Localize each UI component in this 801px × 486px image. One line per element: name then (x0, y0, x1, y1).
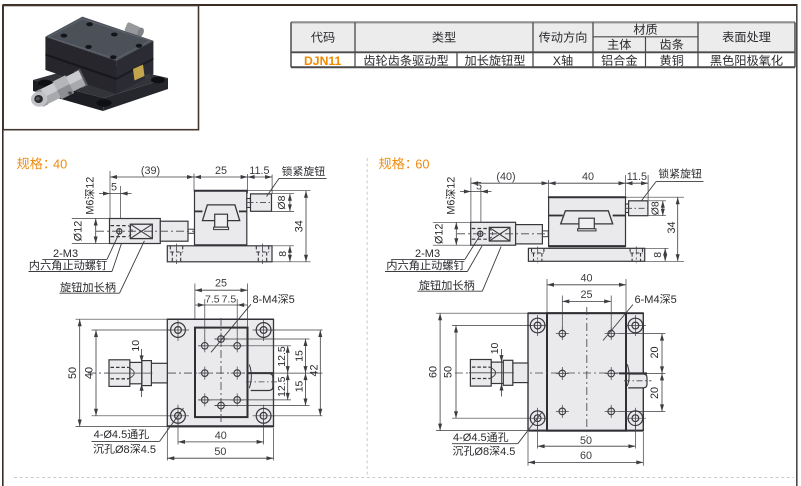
svg-text:12.5: 12.5 (276, 346, 288, 367)
svg-text:25: 25 (581, 289, 593, 301)
svg-text:42: 42 (309, 364, 321, 376)
svg-text:34: 34 (294, 220, 306, 232)
svg-text:6-M4: 6-M4 (635, 294, 660, 306)
svg-text:5: 5 (111, 182, 117, 194)
svg-text:60: 60 (415, 156, 429, 171)
svg-text:11.5: 11.5 (627, 171, 647, 183)
svg-text:40: 40 (582, 171, 594, 183)
svg-text:25: 25 (215, 278, 227, 290)
svg-text:12: 12 (85, 177, 97, 189)
svg-text:4-Ø4.5: 4-Ø4.5 (94, 429, 128, 441)
svg-text:(40): (40) (496, 171, 515, 183)
svg-text:5: 5 (289, 294, 295, 306)
svg-text:40: 40 (215, 430, 227, 442)
svg-text:10: 10 (130, 340, 142, 352)
svg-text:25: 25 (215, 165, 227, 177)
svg-text:60: 60 (427, 366, 439, 378)
svg-text:Ø12: Ø12 (72, 221, 84, 241)
svg-text:M6: M6 (85, 200, 97, 215)
svg-text:40: 40 (53, 156, 67, 171)
svg-text:40: 40 (83, 367, 95, 379)
svg-text:Ø8: Ø8 (276, 195, 288, 209)
svg-text:10: 10 (489, 342, 501, 354)
svg-text:M6: M6 (446, 200, 458, 215)
svg-text:40: 40 (581, 273, 593, 285)
svg-text:12.5: 12.5 (276, 376, 288, 397)
svg-text:4-Ø4.5: 4-Ø4.5 (453, 432, 487, 444)
svg-text:34: 34 (666, 221, 678, 233)
svg-text:Ø8: Ø8 (115, 444, 130, 456)
svg-text:60: 60 (580, 450, 592, 462)
svg-text:20: 20 (649, 346, 661, 358)
svg-text:15: 15 (294, 350, 306, 362)
svg-text:7.5: 7.5 (205, 293, 220, 305)
svg-text:(39): (39) (141, 165, 160, 177)
svg-text:50: 50 (442, 366, 454, 378)
svg-text:8: 8 (652, 252, 664, 258)
svg-text:X: X (553, 54, 561, 68)
svg-text:2-M3: 2-M3 (415, 248, 440, 260)
svg-text:4.5: 4.5 (141, 444, 156, 456)
svg-text:12: 12 (446, 177, 458, 189)
svg-text:Ø12: Ø12 (433, 224, 445, 244)
svg-text:50: 50 (67, 367, 79, 379)
svg-text:8-M4: 8-M4 (253, 294, 278, 306)
svg-text:4.5: 4.5 (500, 446, 515, 458)
svg-text:20: 20 (649, 387, 661, 399)
svg-text:50: 50 (214, 446, 226, 458)
svg-text:Ø8: Ø8 (474, 446, 489, 458)
svg-text:Ø8: Ø8 (649, 201, 661, 215)
svg-text:DJN11: DJN11 (304, 54, 341, 68)
svg-text:50: 50 (580, 435, 592, 447)
svg-text:5: 5 (671, 294, 677, 306)
svg-text:15: 15 (294, 380, 306, 392)
svg-text:7.5: 7.5 (222, 293, 237, 305)
svg-text:11.5: 11.5 (249, 165, 269, 177)
svg-text:8: 8 (277, 251, 289, 257)
svg-text:5: 5 (476, 180, 482, 192)
svg-text:2-M3: 2-M3 (53, 248, 78, 260)
